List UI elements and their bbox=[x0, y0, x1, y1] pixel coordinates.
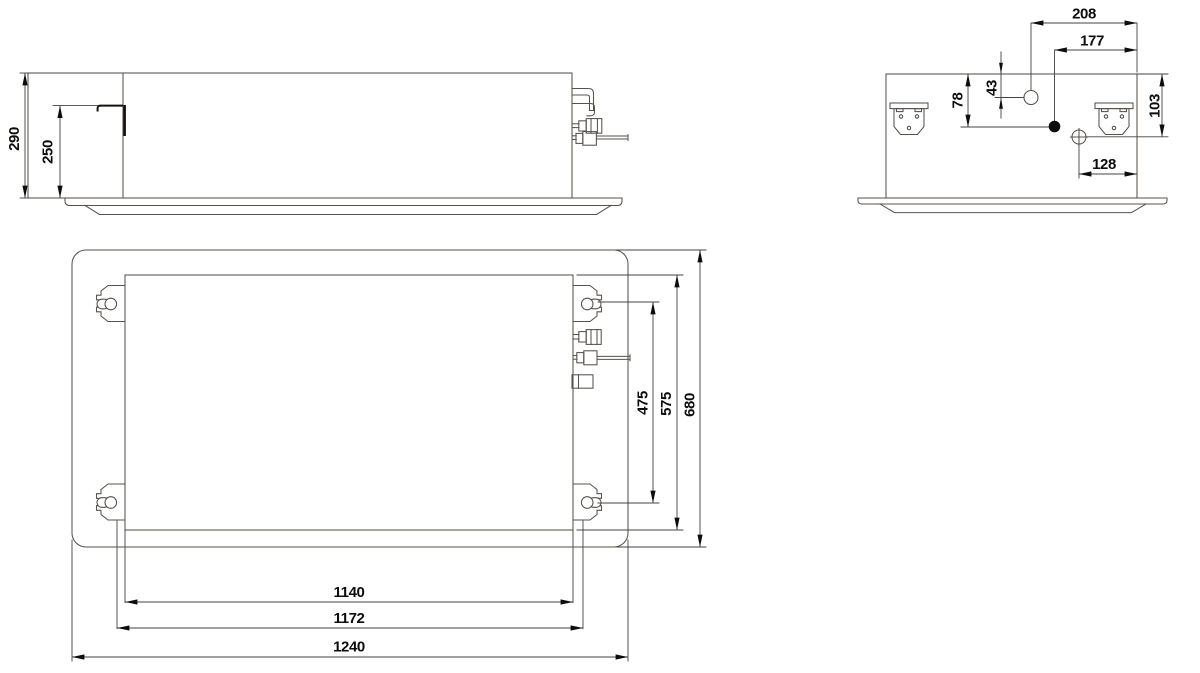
dim-680-label: 680 bbox=[681, 393, 698, 417]
dim-103-label: 103 bbox=[1146, 94, 1163, 118]
ceiling-panel-plan bbox=[72, 250, 628, 547]
dim-1140: 1140 bbox=[125, 584, 573, 602]
dim-103: 103 bbox=[1087, 74, 1169, 137]
refrigerant-pipes-plan bbox=[573, 330, 630, 365]
drain-outlet-plan bbox=[572, 375, 593, 388]
dim-128: 128 bbox=[1079, 156, 1137, 174]
dim-575: 575 bbox=[577, 275, 683, 530]
pipe-clamp bbox=[572, 104, 595, 116]
dim-78-label: 78 bbox=[949, 93, 966, 109]
unit-body-plan bbox=[125, 275, 573, 530]
dim-1240-label: 1240 bbox=[333, 639, 365, 656]
dim-1172-label: 1172 bbox=[334, 610, 365, 627]
dim-250: 250 bbox=[39, 106, 97, 198]
knockout-hole-filled bbox=[1049, 121, 1061, 133]
drain-hole-crosshair bbox=[1071, 129, 1088, 146]
dim-128-label: 128 bbox=[1092, 156, 1116, 173]
dim-177-label: 177 bbox=[1080, 33, 1104, 50]
dim-1172: 1172 bbox=[117, 610, 583, 628]
dim-575-label: 575 bbox=[658, 392, 675, 416]
refrigerant-pipes-front bbox=[572, 89, 628, 146]
technical-drawing: 290 250 208 bbox=[0, 0, 1200, 673]
dim-43: 43 bbox=[983, 52, 1024, 118]
ceiling-panel-front bbox=[65, 198, 622, 215]
dim-250-label: 250 bbox=[39, 140, 56, 164]
knockout-hole-open bbox=[1024, 91, 1038, 105]
dim-1140-label: 1140 bbox=[334, 584, 365, 601]
ceiling-panel-side bbox=[858, 198, 1167, 213]
unit-body-side bbox=[886, 74, 1137, 198]
dim-1240: 1240 bbox=[72, 639, 628, 658]
dim-290: 290 bbox=[6, 73, 29, 198]
dim-208-label: 208 bbox=[1072, 6, 1096, 23]
dim-290-label: 290 bbox=[6, 127, 23, 151]
hanger-bracket-edge bbox=[98, 105, 125, 136]
dim-177: 177 bbox=[1055, 33, 1138, 51]
dim-43-label: 43 bbox=[983, 80, 1000, 96]
dim-475-label: 475 bbox=[634, 391, 651, 415]
front-view: 290 250 bbox=[6, 73, 628, 215]
side-view: 208 177 43 78 103 bbox=[858, 6, 1168, 213]
unit-body-front bbox=[28, 73, 572, 198]
plan-view: 475 575 680 1140 1172 bbox=[72, 250, 706, 661]
